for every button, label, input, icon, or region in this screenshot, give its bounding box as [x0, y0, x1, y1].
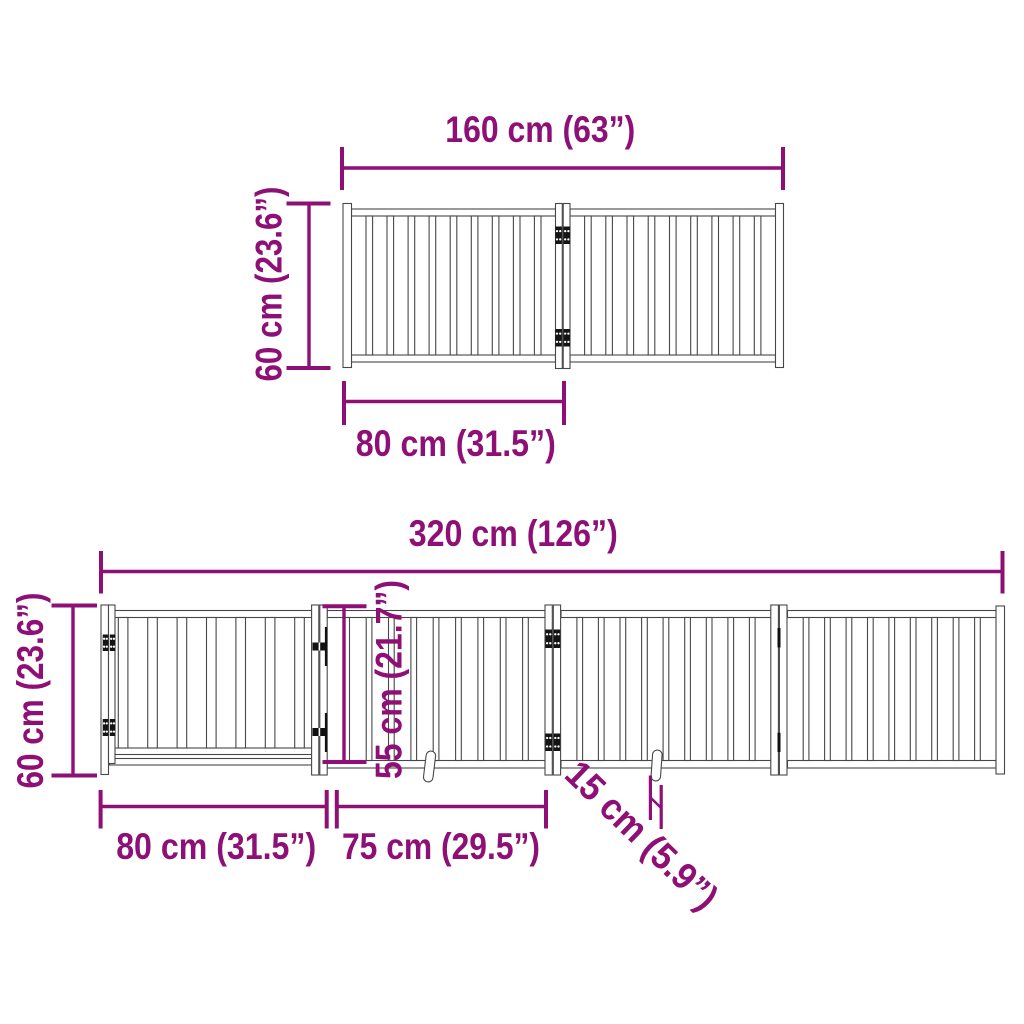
svg-text:60 cm (23.6”): 60 cm (23.6”) — [9, 593, 51, 789]
svg-text:55 cm (21.7”): 55 cm (21.7”) — [368, 580, 410, 779]
svg-text:60 cm (23.6”): 60 cm (23.6”) — [247, 187, 289, 382]
svg-text:80 cm (31.5”): 80 cm (31.5”) — [116, 825, 316, 867]
svg-text:320 cm (126”): 320 cm (126”) — [409, 512, 618, 554]
svg-text:75 cm (29.5”): 75 cm (29.5”) — [342, 825, 540, 867]
svg-text:160 cm (63”): 160 cm (63”) — [445, 108, 635, 150]
svg-text:80 cm (31.5”): 80 cm (31.5”) — [356, 422, 556, 464]
svg-text:15 cm (5.9”): 15 cm (5.9”) — [557, 752, 726, 918]
